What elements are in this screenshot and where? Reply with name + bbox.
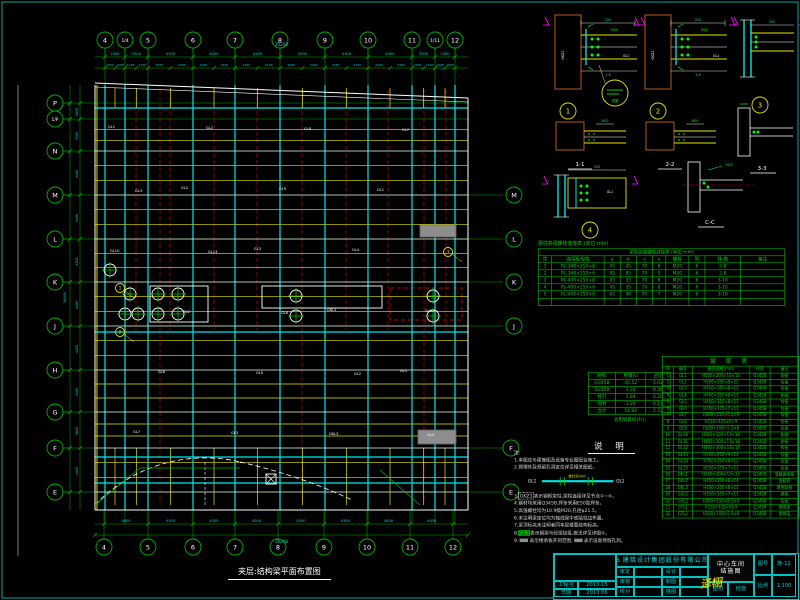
cad-text: GL1	[607, 190, 613, 194]
cad-line	[678, 67, 683, 70]
cad-text: L	[512, 235, 516, 243]
note-item: 3.GKZ1表示钢框架柱,梁柱连接详见节点①~④。	[514, 492, 665, 499]
cad-text: 4	[588, 227, 593, 235]
cad-text: 8	[278, 36, 282, 44]
table-title: 梁柱高强螺栓连接表 (单位:mm)	[538, 249, 784, 256]
table-row: 5PL-450×250×84590707M2063-10	[538, 291, 784, 298]
break-mark	[635, 17, 639, 25]
bolt	[597, 54, 599, 56]
boxed-ref: GKZ1	[518, 492, 534, 499]
cell: 45	[604, 277, 620, 284]
cell: 3-10	[705, 291, 741, 298]
table-row: 11GL11H450×300×11×18Q345B刚接	[662, 439, 799, 446]
beam-label: GL1	[108, 125, 115, 129]
cad-text: 10	[364, 36, 372, 44]
canopy-arc	[240, 462, 352, 500]
company-name: ⚓建筑设计集团股份有限公司	[616, 554, 708, 567]
beam-label: GL6	[281, 311, 289, 315]
col-header: 截面规格(mm)	[692, 366, 749, 373]
cad-text: M	[511, 191, 517, 199]
tb-cell	[634, 567, 662, 577]
cell: 刚接	[770, 432, 799, 439]
note-item: 2.预埋件及预留孔洞定位详见相关图纸。	[514, 464, 665, 471]
tb-cell: 施-12	[772, 554, 796, 575]
cad-line	[678, 24, 683, 27]
cell: 1.84	[616, 394, 646, 401]
cell: 楼梯梁	[770, 511, 799, 518]
cad-text: N	[53, 147, 58, 155]
cell: 6	[652, 263, 665, 270]
cell: H200×100×5.5×8	[692, 511, 749, 518]
cell: 栓钉	[588, 394, 615, 401]
gray-block	[418, 430, 456, 444]
beam-label: GL1	[377, 188, 384, 192]
note-item: 5.高强螺栓均为10.9级M20,孔径φ21.5。	[514, 507, 665, 514]
table-row: 1PL-348×250×84545706M2062-8	[538, 263, 784, 270]
cad-text: 4200	[209, 52, 219, 56]
col-header: 材料	[588, 372, 615, 379]
cad-text: 4400	[75, 301, 79, 309]
bolt-table: 梁柱高强螺栓连接表 (单位:mm)序连接板规格abce螺栓列排-数备注1PL-3…	[538, 248, 785, 305]
cad-text: 4300	[427, 519, 437, 523]
cell: Q345B	[750, 505, 771, 512]
beam-label: GL8	[304, 127, 312, 131]
cell: M20	[666, 284, 689, 291]
tb-cell: 比例	[754, 575, 772, 597]
beam-label: GL12	[425, 309, 434, 313]
cell: H500×200×10×16	[692, 373, 749, 380]
cad-text: 8	[276, 543, 280, 551]
cell: 70	[636, 270, 652, 277]
cell: PL-348×250×8	[552, 263, 605, 270]
cad-text: 1150	[127, 63, 135, 67]
cad-text: 2100	[242, 63, 250, 67]
cad-text: 3	[758, 102, 762, 110]
cad-text: 7	[233, 36, 237, 44]
cell: 6	[689, 284, 705, 291]
cad-text: E	[53, 488, 57, 496]
cell: 70	[636, 277, 652, 284]
cad-text: 2-8	[695, 73, 700, 77]
beam-mini-diagram: GL1 GL1 栓钉@200	[527, 473, 632, 488]
bolt-table-panel: 梁柱高强螺栓连接表 (单位:mm) 梁柱高强螺栓连接表 (单位:mm)序连接板规…	[538, 240, 800, 334]
cad-text: 4200	[253, 52, 263, 56]
bolt	[755, 36, 757, 38]
cad-text: J	[53, 322, 56, 330]
column-label: GKZ1	[561, 50, 565, 59]
tb-meta: 图号施-12比例1:100	[754, 554, 796, 599]
cell: GL11	[673, 439, 692, 446]
cell: 7	[652, 291, 665, 298]
cad-text: 2100	[221, 63, 229, 67]
cell: 90	[620, 291, 636, 298]
cell: 85	[620, 270, 636, 277]
beam-label: GL2	[181, 186, 188, 190]
cad-text: K	[53, 278, 58, 286]
cad-text: 2100	[200, 63, 208, 67]
note-item: 1.本图应与建施图及设备专业图配合施工。	[514, 456, 665, 463]
gray-swatch	[574, 539, 582, 543]
cad-text: 6	[191, 543, 195, 551]
beam-label: GL4	[427, 433, 435, 437]
cad-text: 1-1	[576, 162, 585, 168]
cad-text: 2150	[332, 63, 340, 67]
cell: PL-450×250×8	[552, 291, 605, 298]
opening	[150, 286, 208, 322]
cell: 70	[636, 291, 652, 298]
cell: GL2	[673, 379, 692, 386]
cad-text: 250	[605, 18, 611, 22]
cad-text: 4300	[75, 257, 79, 265]
svg-text:GL1: GL1	[528, 479, 537, 484]
cell	[538, 298, 551, 305]
cell: M20	[666, 291, 689, 298]
cad-text: 2200	[375, 63, 383, 67]
cell: Q345B	[750, 379, 771, 386]
cad-text: GL1	[623, 54, 629, 58]
cad-text: 2100	[265, 63, 273, 67]
cell: 20	[662, 498, 673, 505]
cad-text: 1	[119, 286, 122, 291]
cad-text: 3600	[75, 427, 79, 435]
cad-text: 9	[323, 36, 327, 44]
cad-text: 2-8	[605, 73, 610, 77]
bolt	[687, 54, 689, 56]
cad-text: 1/P	[52, 117, 59, 123]
bolt	[591, 54, 593, 56]
table-row: 2GL2H500×200×8×12Q345B铰接	[662, 379, 799, 386]
cell: Q345B	[750, 511, 771, 518]
cad-text: 11	[408, 36, 416, 44]
break-mark	[641, 17, 645, 25]
cad-text: F	[53, 444, 57, 452]
beam-label: GL2	[206, 126, 213, 130]
cad-text: 2300	[419, 52, 429, 56]
cad-text: 4400	[385, 52, 395, 56]
column-label: GKZ1	[651, 50, 655, 59]
cell: GXL2	[673, 498, 692, 505]
column-cut	[646, 122, 674, 150]
steel-usage-table: 材料用量(t)占比Q345B45.525.02Q235B3.280.36栓钉1.…	[588, 372, 671, 415]
cad-text: 1250	[106, 63, 114, 67]
cell: 12	[662, 445, 673, 452]
cad-text: 2250	[287, 63, 295, 67]
bolt	[597, 38, 599, 40]
cad-text: 4300	[342, 52, 352, 56]
cell: 3-10	[705, 277, 741, 284]
beam-label: GL6	[158, 370, 166, 374]
cell: 5	[652, 270, 665, 277]
table-row: 栓钉1.840.20	[588, 394, 670, 401]
cell: 51.92	[616, 408, 646, 415]
cad-line	[588, 67, 593, 70]
cad-text: 1150	[414, 63, 422, 67]
highlighted-ref: GJL1	[518, 530, 530, 536]
cell: Q345B	[750, 445, 771, 452]
cell	[741, 277, 785, 284]
cell: 45	[604, 291, 620, 298]
svg-text:栓钉@200: 栓钉@200	[568, 474, 585, 479]
column-cut	[556, 122, 584, 150]
cad-text: 2200	[397, 63, 405, 67]
cad-text: 3200	[75, 132, 79, 140]
cad-sheet: 3520025002300450042004200450043004400230…	[0, 0, 800, 600]
cell: H400×300×10×16	[692, 445, 749, 452]
cell: 45.52	[616, 380, 646, 387]
cell: 6	[689, 291, 705, 298]
cell: Q235B	[588, 387, 615, 394]
svg-text:GL1: GL1	[616, 479, 625, 484]
tb-cell: 审定	[616, 567, 634, 577]
col-header: e	[652, 256, 665, 263]
cell: 合计	[588, 408, 615, 415]
notes-label: 注:	[514, 450, 520, 456]
cad-text: M20	[692, 119, 699, 123]
bolt	[681, 54, 683, 56]
note-item: 7.梁顶标高未注明者同本层楼面结构标高。	[514, 522, 665, 529]
col-header: 备注	[741, 256, 785, 263]
cad-rect	[738, 108, 750, 156]
cell: 22	[662, 511, 673, 518]
cell: 35	[620, 284, 636, 291]
bolt	[687, 46, 689, 48]
cad-text: F	[509, 444, 513, 452]
bolt	[597, 46, 599, 48]
cell: M20	[666, 270, 689, 277]
cad-rect	[688, 162, 700, 212]
cell: 铰接	[770, 445, 799, 452]
cad-text: 4400	[384, 519, 394, 523]
bolt	[703, 182, 705, 184]
cell: Q345B	[750, 498, 771, 505]
tb-cell	[634, 587, 662, 597]
company-logo-icon: ⚓	[616, 557, 622, 564]
cell: 45	[604, 270, 620, 277]
cad-text: 1150	[425, 63, 433, 67]
cad-text: 4200	[209, 519, 219, 523]
bolt-table-title: 梁柱高强螺栓连接表 (单位:mm)	[538, 240, 797, 247]
cad-text: 4500	[166, 52, 176, 56]
beam-label: GL4	[352, 248, 360, 252]
beam-label: GL2	[354, 372, 361, 376]
cell: H300×150×6.5×9	[692, 498, 749, 505]
cell: Q345B	[750, 432, 771, 439]
beam-label: GL10	[110, 249, 120, 253]
note-item: 6.未注明梁定位均为轴线居中或贴柱边布置。	[514, 515, 665, 522]
cad-text: 7	[233, 543, 237, 551]
cad-text: 4400	[75, 467, 79, 475]
cad-text: 1/11	[430, 38, 440, 44]
canopy-arc	[95, 458, 240, 505]
cell: H450×300×11×18	[692, 439, 749, 446]
cell: 10	[662, 432, 673, 439]
cell: 楼梯梁	[770, 505, 799, 512]
cad-text: 详图	[612, 98, 619, 103]
tb-cell: 制图	[662, 577, 680, 587]
cell: Q345B	[588, 380, 615, 387]
cad-text: G	[52, 408, 57, 416]
bolt	[687, 38, 689, 40]
cad-text: 4400	[75, 345, 79, 353]
beam-label: GL13	[208, 250, 217, 254]
bolt	[586, 185, 588, 187]
tb-cell: 校对	[616, 587, 634, 597]
col-header: 序	[538, 256, 551, 263]
cell: 1	[538, 263, 551, 270]
cad-text: 4500	[166, 519, 176, 523]
bolt	[591, 38, 593, 40]
beam-plan	[568, 178, 626, 208]
cad-text: 12	[451, 36, 459, 44]
col-header: a	[604, 256, 620, 263]
table-row: 合计51.925.72	[588, 408, 670, 415]
cell: 70	[636, 284, 652, 291]
tb-middle: ⚓建筑设计集团股份有限公司审定设计审核制图校对描图	[616, 554, 708, 599]
cell: 2-8	[705, 270, 741, 277]
beam-label: GL3	[254, 247, 261, 251]
col-header: 列	[689, 256, 705, 263]
tb-cell: 2013.06	[578, 589, 616, 597]
tb-cell: 结施	[728, 582, 754, 597]
tb-cell: 描图	[662, 587, 680, 597]
steel-usage-caption: 总用钢量统计(t)	[588, 416, 672, 422]
cell	[604, 298, 620, 305]
col-header: 连接板规格	[552, 256, 605, 263]
cell: 6	[652, 277, 665, 284]
col-header: 序	[662, 366, 673, 373]
table-row: 1GL1H500×200×10×16Q345B刚接	[662, 373, 799, 380]
bolt	[586, 199, 588, 201]
cell: 2	[538, 270, 551, 277]
cell: 45	[620, 263, 636, 270]
signature: 泽栩	[699, 574, 723, 592]
callout-leader	[452, 254, 462, 262]
cad-text: 6	[191, 36, 195, 44]
cad-text: 4400	[75, 214, 79, 222]
member-table: 钢 梁 表序编号截面规格(mm)材质备注1GL1H500×200×10×16Q3…	[662, 356, 799, 518]
cad-text: 1000	[436, 63, 444, 67]
cad-text: 5	[146, 543, 150, 551]
beam-label: GL9	[279, 187, 287, 191]
cell: H250×125×6×9	[692, 505, 749, 512]
beam-label: GL2	[183, 310, 190, 314]
beam-label: GL7	[402, 128, 409, 132]
col-header: 编号	[673, 366, 692, 373]
table-row: Q235B3.280.36	[588, 387, 670, 394]
cad-text: 2250	[155, 63, 163, 67]
tb-cell: 图号	[754, 554, 772, 575]
tb-cell	[634, 577, 662, 587]
table-row: 22GTL2H200×100×5.5×8Q345B楼梯梁	[662, 511, 799, 518]
cad-text: 1250	[116, 63, 124, 67]
cad-text: M20	[602, 119, 609, 123]
bolt	[681, 46, 683, 48]
cell	[741, 284, 785, 291]
cad-text: 1/4	[121, 38, 128, 44]
cell: 刚接	[770, 439, 799, 446]
cell: PL-348×250×6	[552, 270, 605, 277]
cad-line	[588, 24, 593, 27]
cell: M20	[666, 277, 689, 284]
break-mark	[634, 176, 638, 184]
cell: GL12	[673, 445, 692, 452]
cad-text: 4200	[252, 519, 262, 523]
gray-block	[420, 225, 456, 237]
cell: GL1	[673, 373, 692, 380]
cad-text: J	[512, 322, 515, 330]
cad-text: 2300	[132, 52, 142, 56]
table-row: 12GL12H400×300×10×16Q345B铰接	[662, 445, 799, 452]
cad-text: 200	[769, 20, 775, 24]
cell	[636, 298, 652, 305]
table-row	[538, 298, 784, 305]
cad-text: 4500	[298, 52, 308, 56]
cell: GTL1	[673, 505, 692, 512]
cell: H500×300×11×18	[692, 432, 749, 439]
cell	[741, 291, 785, 298]
table-row: 10GL10H500×300×11×18Q345B刚接	[662, 432, 799, 439]
table-row: 21GTL1H250×125×6×9Q345B楼梯梁	[662, 505, 799, 512]
cad-text: M20	[726, 163, 733, 167]
cell: 6	[689, 270, 705, 277]
cell: Q345B	[750, 373, 771, 380]
note-diagram: GL1 GL1 栓钉@200	[514, 471, 665, 492]
cell: 4	[538, 284, 551, 291]
table-row: 20GXL2H300×150×6.5×9Q345B铰接	[662, 498, 799, 505]
cad-text: 1000	[446, 63, 454, 67]
bolt	[586, 192, 588, 194]
tb-cell: 工程号	[554, 581, 578, 589]
col-header: 排-数	[705, 256, 741, 263]
break-mark	[544, 176, 548, 184]
break-mark	[545, 17, 549, 25]
bolt	[580, 185, 582, 187]
cad-text: 250	[695, 18, 701, 22]
cell	[666, 298, 689, 305]
beam-label: GL5	[256, 371, 263, 375]
beam-label: GL7	[133, 430, 140, 434]
cad-line	[708, 166, 722, 170]
cad-text: 4400	[75, 170, 79, 178]
cad-text: 2	[656, 108, 660, 116]
cad-text: M20	[611, 28, 618, 32]
cell: 45	[604, 284, 620, 291]
column-section	[555, 15, 581, 89]
tb-cell: 2013-15	[578, 581, 616, 589]
cad-text: E	[509, 488, 513, 496]
cad-text: L	[53, 235, 57, 243]
cell: 2-8	[705, 263, 741, 270]
cell: 6	[689, 263, 705, 270]
note-legend: 9.表示楼承板开洞范围,表示设备预留孔洞。	[514, 537, 665, 544]
cad-text: GL1	[713, 54, 719, 58]
cell	[552, 298, 605, 305]
cad-text: 2500	[110, 52, 120, 56]
cell: 铰接	[770, 379, 799, 386]
cad-text: K	[512, 278, 517, 286]
table-row: 2PL-348×250×64585705M2062-8	[538, 270, 784, 277]
cad-text: 4500	[296, 519, 306, 523]
cad-text: 1150	[138, 63, 146, 67]
cad-text: 2000	[440, 52, 450, 56]
col-header: 备注	[770, 366, 799, 373]
plan-title: 夹层:结构梁平面布置图	[228, 566, 331, 580]
tb-blank	[554, 554, 616, 581]
bolt	[757, 131, 759, 133]
col-header: 材质	[750, 366, 771, 373]
bolt	[707, 186, 709, 188]
cad-text: 11	[406, 543, 414, 551]
